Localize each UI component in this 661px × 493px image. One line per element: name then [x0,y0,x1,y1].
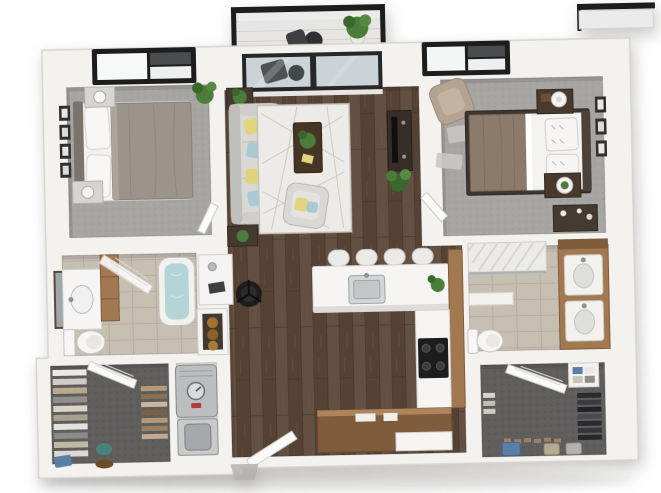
storage-bin-blue [502,442,520,455]
utility-closet [175,365,218,456]
sliding-glass-door [242,51,383,97]
headboard [581,111,592,191]
desk [198,254,233,305]
nightstand [73,181,103,204]
half-wall [469,292,513,305]
tv [391,117,398,163]
folded-clothes-shelf [568,363,598,388]
nightstand [544,173,580,198]
shower [468,242,547,274]
linen-shelf [197,308,228,355]
neighbor-railing [577,2,656,31]
bar-stool [328,250,349,266]
side-table [227,226,257,247]
table-lamp [82,186,94,198]
entry-threshold [230,464,258,481]
wall-art [595,96,607,156]
dresser [553,205,598,232]
hanging-clothes [483,393,495,414]
throw-pillow [306,201,319,214]
bar-stool [412,248,433,264]
vanity [54,269,101,330]
toilet [64,329,106,356]
bar-stool [356,249,377,265]
bathtub [158,257,195,326]
floor-mat [436,153,463,170]
storage-bin-tan [544,443,559,454]
nightstand [537,89,573,114]
table-lamp [94,91,106,103]
double-vanity [558,238,610,349]
storage-bin-gray [566,443,581,454]
floorplan-image [0,0,661,493]
accent-armchair [282,182,330,230]
lower-cabinets [317,408,452,453]
stove [418,338,449,379]
floor-plan [29,0,661,484]
nightstand [85,87,115,108]
bedroom-2-window [422,40,511,76]
upper-cabinet [558,238,608,249]
desk-lamp [208,263,216,271]
kitchen-sink [348,273,385,304]
pillow [545,117,579,151]
toilet [468,329,503,354]
bedroom-1-window [92,47,197,85]
counter-run [415,310,451,411]
water-heater [175,365,217,418]
coffee-table [293,122,322,173]
media-console [387,110,412,170]
sink [71,285,94,313]
washer [178,419,219,456]
bar-stool [384,249,405,265]
kitchen-island [312,264,449,313]
